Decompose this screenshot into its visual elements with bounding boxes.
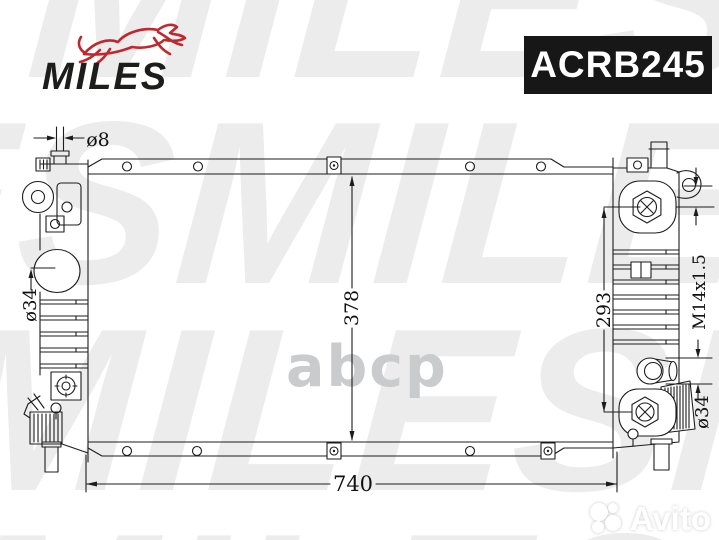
dim-label-drain-thread: M14x1.5 bbox=[690, 254, 710, 330]
product-image: MILES ESMILES SMILESM MILES abcp MILES A… bbox=[0, 0, 719, 540]
dim-label-tank-span: 293 bbox=[593, 292, 615, 328]
dim-label-left-port: ø34 bbox=[20, 288, 41, 322]
dimension-pipe-diameter bbox=[34, 136, 84, 141]
dim-label-pipe-diameter: ø8 bbox=[86, 129, 110, 151]
dimension-drain-thread bbox=[676, 168, 714, 225]
avito-watermark: Avito bbox=[589, 500, 711, 538]
avito-text: Avito bbox=[630, 500, 711, 538]
core-bottom-strip bbox=[88, 442, 613, 459]
avito-dots-icon bbox=[589, 502, 623, 536]
core-top-strip bbox=[88, 157, 613, 174]
right-tank bbox=[613, 142, 701, 470]
dim-label-overall-width: 740 bbox=[333, 472, 373, 496]
dim-label-right-port: ø34 bbox=[692, 395, 713, 429]
radiator-technical-drawing: ø8 ø34 378 293 M14x1.5 ø34 740 bbox=[0, 0, 719, 540]
dim-label-core-height: 378 bbox=[341, 290, 363, 326]
